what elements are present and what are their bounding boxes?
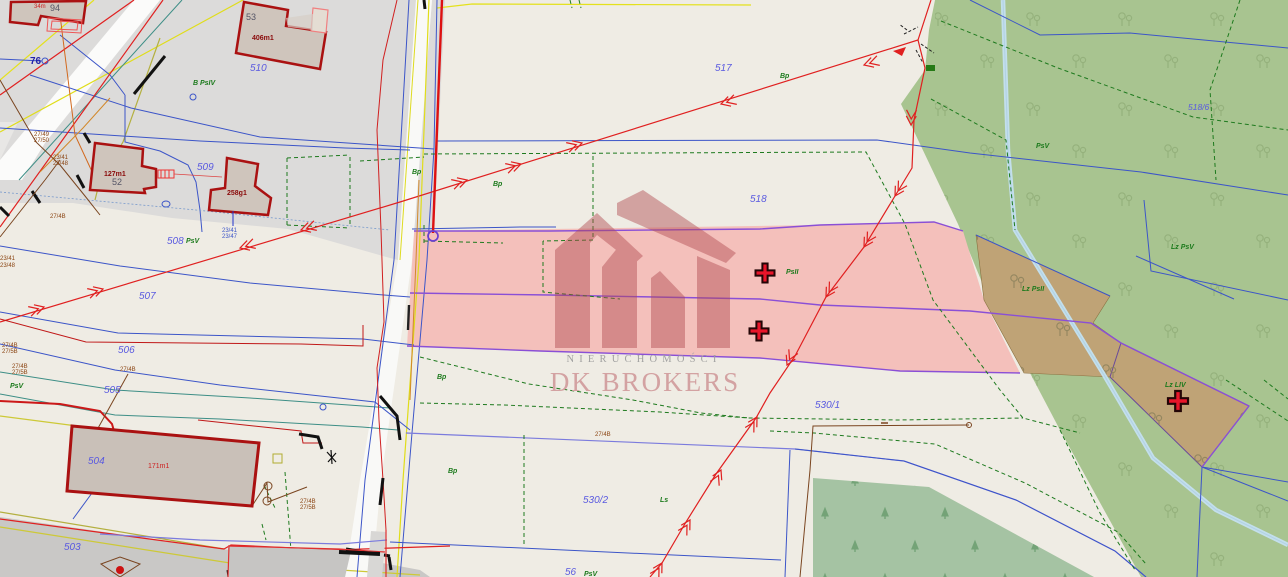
svg-text:NIERUCHOMOŚCI: NIERUCHOMOŚCI [566, 353, 721, 365]
svg-text:27/4B: 27/4B [50, 214, 66, 220]
svg-text:PsV: PsV [584, 571, 599, 577]
svg-text:506: 506 [118, 345, 135, 356]
svg-text:510: 510 [250, 63, 267, 74]
svg-text:406m1: 406m1 [252, 35, 274, 42]
svg-text:94: 94 [50, 3, 60, 13]
svg-text:507: 507 [139, 291, 156, 302]
svg-text:27/4B: 27/4B [120, 367, 136, 373]
svg-text:27/4B: 27/4B [595, 432, 611, 438]
svg-text:23/48: 23/48 [53, 161, 69, 167]
svg-text:518: 518 [750, 194, 767, 205]
svg-text:517: 517 [715, 63, 732, 74]
svg-text:171m1: 171m1 [148, 463, 170, 470]
svg-text:530/2: 530/2 [583, 495, 608, 506]
svg-text:PsII: PsII [786, 269, 800, 276]
svg-text:34m: 34m [34, 4, 46, 10]
svg-text:Lz PsV: Lz PsV [1171, 244, 1195, 251]
svg-text:Bp: Bp [412, 169, 422, 176]
svg-text:Bp: Bp [448, 468, 458, 475]
svg-text:PsV: PsV [1036, 143, 1051, 150]
svg-text:B PsIV: B PsIV [193, 80, 217, 87]
svg-text:258g1: 258g1 [227, 190, 247, 197]
svg-text:27/5B: 27/5B [2, 349, 18, 355]
svg-text:518/6: 518/6 [1188, 102, 1210, 112]
svg-text:505: 505 [104, 385, 121, 396]
svg-text:Lz LIV: Lz LIV [1165, 382, 1187, 389]
svg-text:Bp: Bp [437, 374, 447, 381]
svg-text:508: 508 [167, 236, 184, 247]
svg-text:530/1: 530/1 [815, 400, 840, 411]
svg-text:23/48: 23/48 [0, 263, 16, 269]
svg-text:Ls: Ls [660, 497, 668, 504]
svg-text:Bp: Bp [780, 73, 790, 80]
svg-text:509: 509 [197, 162, 214, 173]
svg-text:27/5B: 27/5B [300, 505, 316, 511]
svg-text:PsV: PsV [10, 383, 25, 390]
svg-text:56: 56 [565, 567, 577, 577]
svg-text:503: 503 [64, 542, 81, 553]
svg-text:Lz PsII: Lz PsII [1022, 286, 1045, 293]
svg-text:DK BROKERS: DK BROKERS [550, 367, 740, 397]
svg-text:504: 504 [88, 456, 105, 467]
svg-text:23/41: 23/41 [0, 256, 16, 262]
svg-text:27/5B: 27/5B [12, 370, 28, 376]
svg-text:52: 52 [112, 177, 122, 187]
svg-text:PsV: PsV [186, 238, 201, 245]
svg-text:127m1: 127m1 [104, 171, 126, 178]
svg-text:53: 53 [246, 12, 256, 22]
svg-text:76: 76 [30, 56, 42, 67]
svg-text:23/47: 23/47 [222, 234, 238, 240]
svg-text:27/50: 27/50 [34, 138, 50, 144]
svg-text:Bp: Bp [493, 181, 503, 188]
